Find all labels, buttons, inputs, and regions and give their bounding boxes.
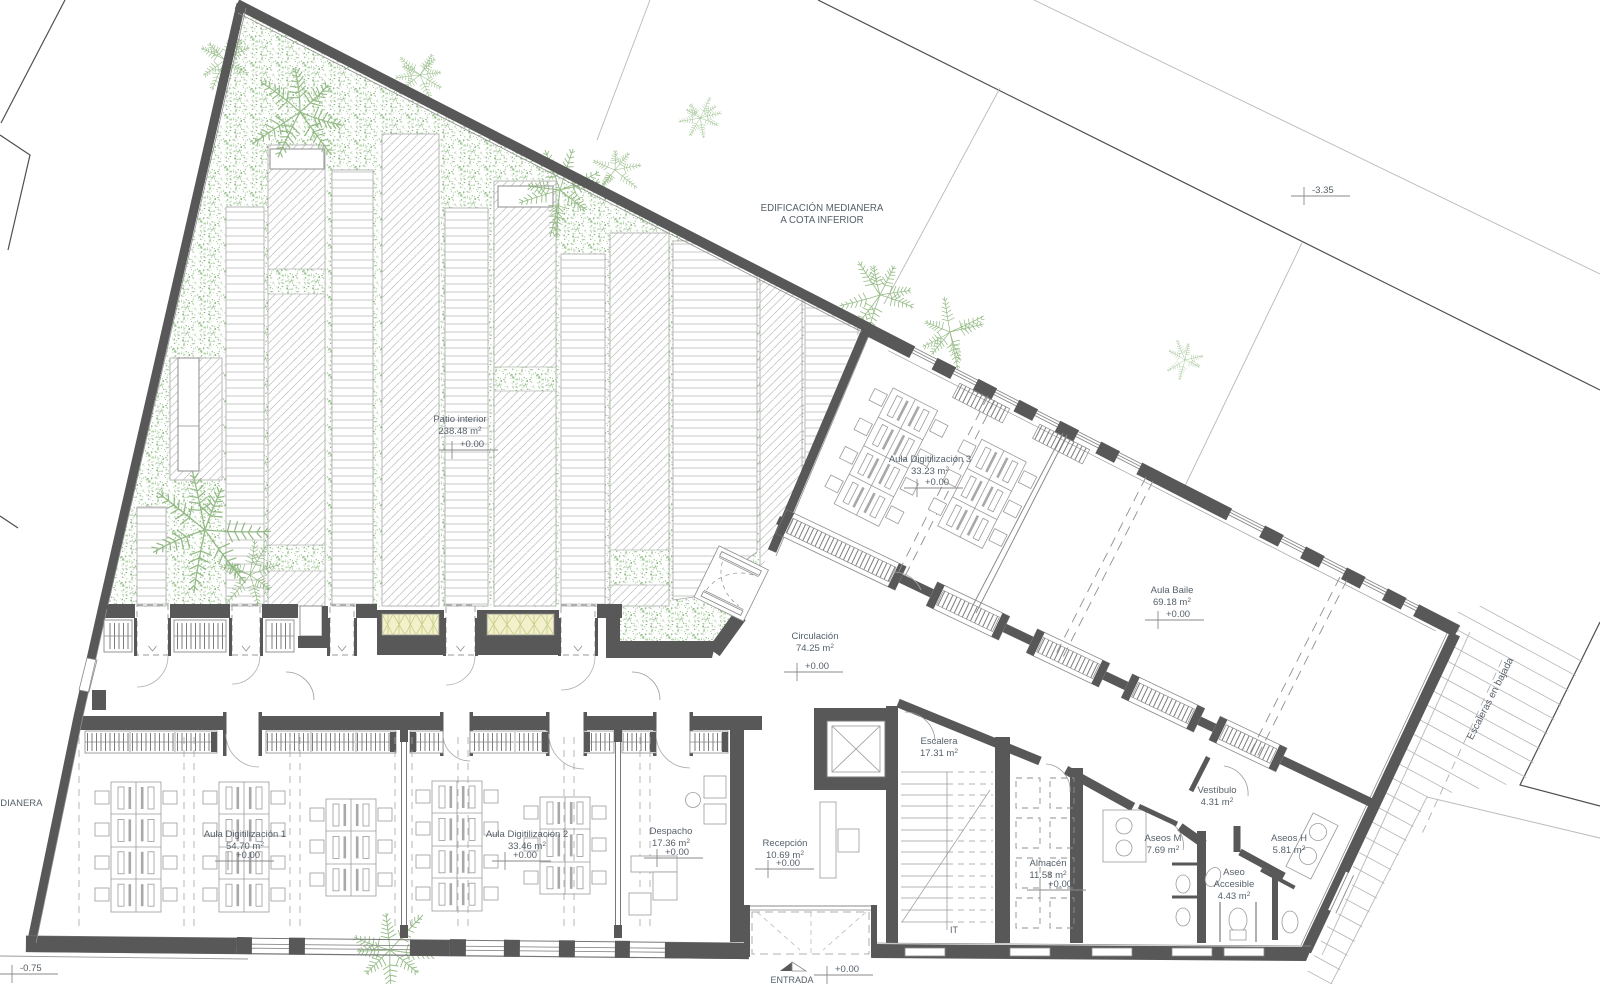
svg-text:Accesible: Accesible (1214, 879, 1255, 890)
svg-text:+0.00: +0.00 (513, 850, 537, 861)
svg-text:-0.75: -0.75 (20, 963, 42, 974)
svg-text:17.31 m2: 17.31 m2 (920, 748, 958, 759)
svg-text:IT: IT (950, 925, 959, 935)
svg-text:Aseos M: Aseos M (1145, 833, 1182, 844)
svg-text:-3.35: -3.35 (1312, 185, 1334, 196)
svg-text:Aula Digitilización 3: Aula Digitilización 3 (889, 454, 971, 465)
svg-text:A COTA INFERIOR: A COTA INFERIOR (780, 215, 863, 226)
svg-text:+0.00: +0.00 (1048, 879, 1072, 890)
svg-text:Aseo: Aseo (1223, 867, 1245, 878)
svg-text:Recepción: Recepción (763, 838, 808, 849)
svg-text:69.18 m2: 69.18 m2 (1153, 597, 1191, 608)
svg-text:+0.00: +0.00 (236, 850, 260, 861)
svg-text:74.25 m2: 74.25 m2 (796, 643, 834, 654)
svg-text:Aula Baile: Aula Baile (1151, 585, 1194, 596)
svg-text:Aula Digitilización 1: Aula Digitilización 1 (204, 829, 286, 840)
svg-text:Vestíbulo: Vestíbulo (1197, 785, 1236, 796)
svg-text:33.23 m2: 33.23 m2 (911, 466, 949, 477)
svg-text:Escalera: Escalera (921, 736, 959, 747)
svg-text:Almacén: Almacén (1030, 858, 1067, 869)
svg-text:MEDIANERA: MEDIANERA (0, 798, 43, 809)
svg-text:Despacho: Despacho (650, 826, 693, 837)
svg-text:+0.00: +0.00 (835, 964, 859, 975)
svg-text:Patio interior: Patio interior (433, 414, 486, 425)
svg-text:4.31 m2: 4.31 m2 (1201, 797, 1234, 808)
svg-text:4.43 m2: 4.43 m2 (1218, 891, 1251, 902)
svg-text:ENTRADA: ENTRADA (770, 975, 813, 984)
svg-text:EDIFICACIÓN MEDIANERA: EDIFICACIÓN MEDIANERA (761, 203, 884, 214)
svg-text:+0.00: +0.00 (460, 439, 484, 450)
svg-text:7.69 m2: 7.69 m2 (1147, 845, 1180, 856)
svg-text:+0.00: +0.00 (776, 858, 800, 869)
svg-text:+0.00: +0.00 (665, 847, 689, 858)
svg-text:5.81 m2: 5.81 m2 (1273, 845, 1306, 856)
svg-text:Circulación: Circulación (792, 631, 839, 642)
svg-text:Aula Digitilización 2: Aula Digitilización 2 (486, 829, 568, 840)
svg-text:Aseos H: Aseos H (1271, 833, 1307, 844)
svg-text:+0.00: +0.00 (805, 661, 829, 672)
svg-text:+0.00: +0.00 (925, 477, 949, 488)
svg-text:238.48 m2: 238.48 m2 (438, 426, 482, 437)
svg-text:+0.00: +0.00 (1166, 609, 1190, 620)
